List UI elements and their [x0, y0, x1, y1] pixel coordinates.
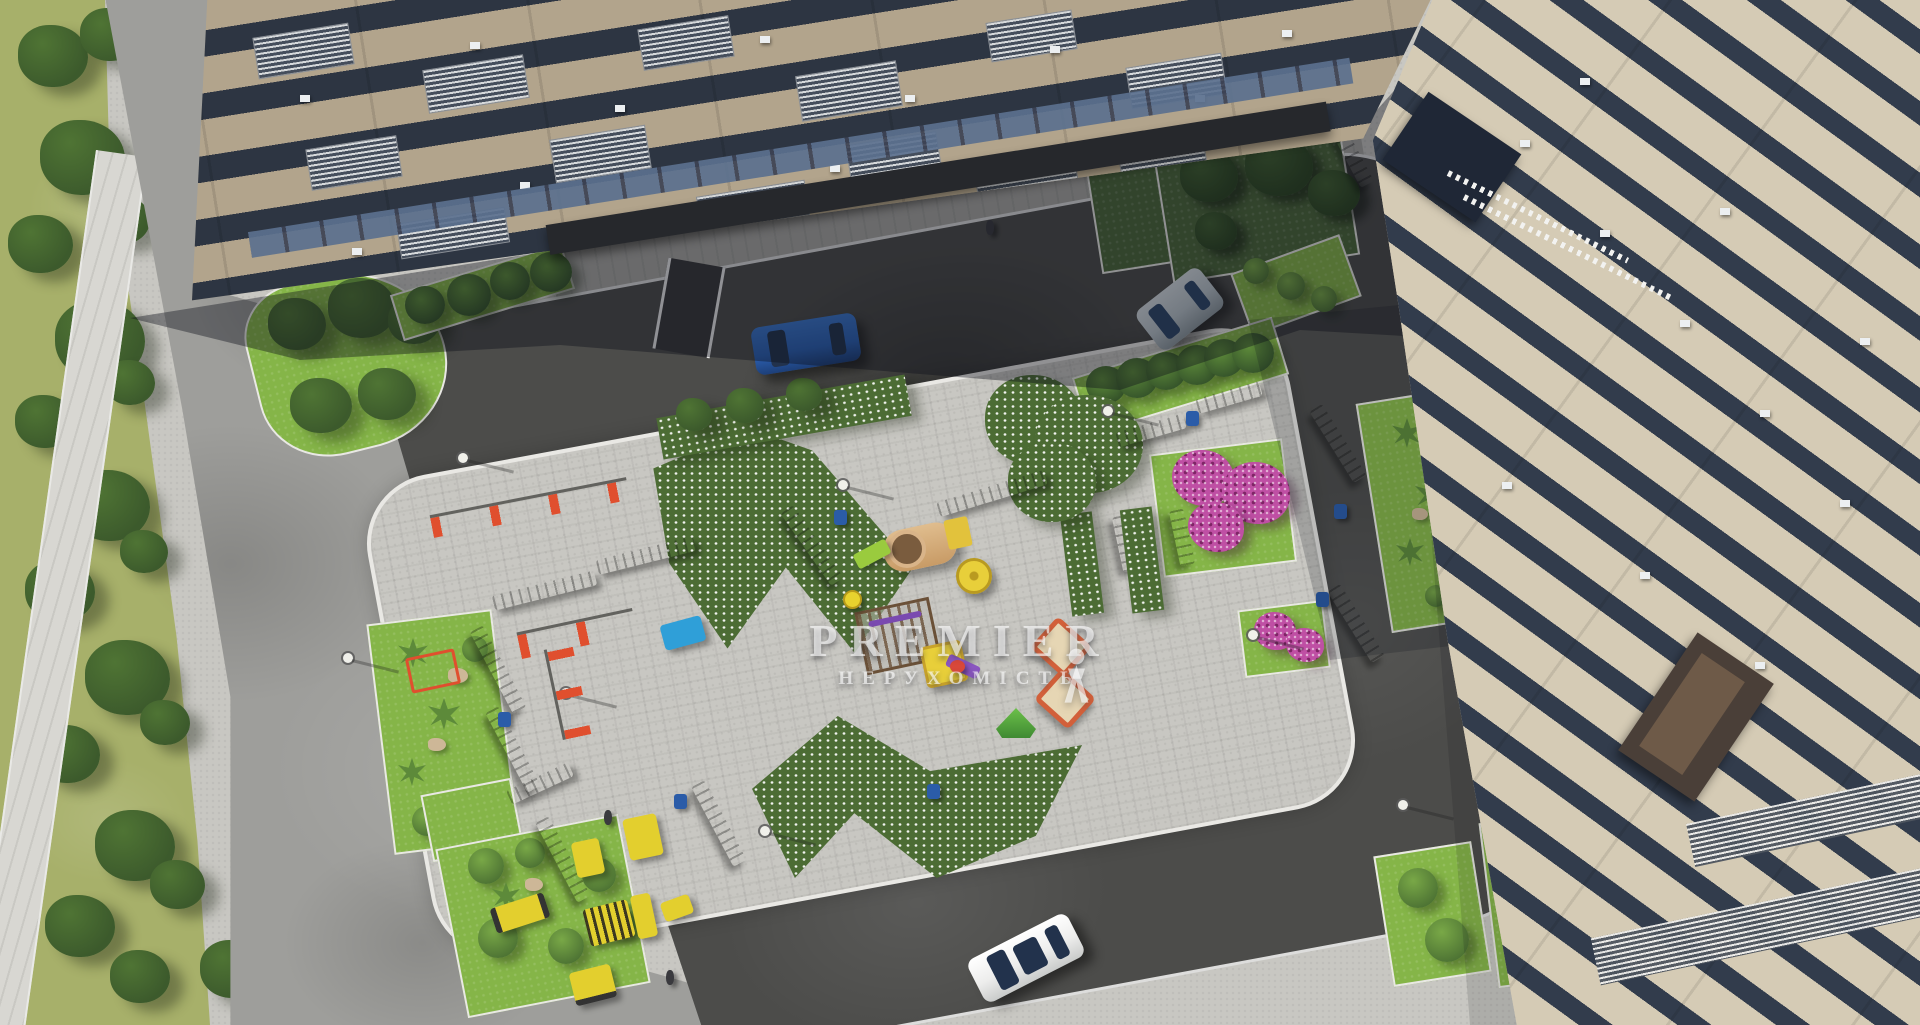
park-tree: [140, 700, 190, 745]
tree: [786, 378, 822, 411]
tunnel-opening: [888, 530, 926, 568]
person: [666, 970, 674, 985]
park-tree: [8, 215, 73, 273]
trash-bin: [1316, 592, 1329, 607]
park-tree: [110, 950, 170, 1003]
carousel: [956, 558, 992, 594]
balcony: [985, 9, 1077, 62]
ac-unit: [1580, 78, 1590, 85]
tree: [726, 388, 764, 423]
tree: [358, 368, 416, 420]
round-bush: [468, 848, 504, 884]
car-rear-window: [828, 322, 847, 356]
cone-tree: [490, 262, 530, 300]
ac-unit: [300, 95, 310, 102]
park-tree: [120, 530, 168, 573]
car-roof-glass: [1012, 936, 1050, 976]
round-bush: [1277, 272, 1305, 300]
tree: [1195, 212, 1237, 250]
person: [986, 220, 994, 235]
ac-unit: [352, 248, 362, 255]
person: [604, 810, 612, 825]
tree: [268, 298, 326, 350]
rock: [1412, 508, 1428, 520]
balcony-railings: [1591, 867, 1920, 986]
round-bush: [1398, 868, 1438, 908]
tree: [328, 278, 396, 338]
park-tree: [150, 860, 205, 909]
courtyard-lawn: [1373, 841, 1491, 987]
round-bush: [1311, 286, 1337, 312]
round-bush: [1243, 258, 1269, 284]
trash-bin: [1334, 504, 1347, 519]
street-lamp: [838, 480, 848, 490]
cone-tree: [447, 274, 491, 316]
ac-unit: [905, 95, 915, 102]
car-windshield: [767, 329, 790, 367]
watermark-title: PREMIER: [0, 618, 1920, 664]
balcony: [795, 60, 903, 121]
cone-tree: [1232, 333, 1274, 373]
tree: [1308, 170, 1360, 216]
tree: [290, 378, 352, 433]
cone-tree: [405, 286, 445, 324]
trash-bin: [834, 510, 847, 525]
ac-unit: [615, 105, 625, 112]
watermark: PREMIER НЕРУХОМІСТЬ: [0, 618, 1920, 690]
ac-unit: [1640, 572, 1650, 579]
balcony-railings: [1686, 773, 1920, 867]
ac-unit: [1760, 410, 1770, 417]
watermark-subtitle: НЕРУХОМІСТЬ: [0, 668, 1920, 690]
park-tree: [45, 895, 115, 957]
balcony: [305, 135, 402, 191]
ac-unit: [470, 42, 480, 49]
ac-unit: [1282, 30, 1292, 37]
balcony: [422, 54, 530, 113]
round-bush: [548, 928, 584, 964]
rock: [525, 878, 543, 891]
street-lamp: [1398, 800, 1408, 810]
rock: [428, 738, 446, 751]
ac-unit: [1680, 320, 1690, 327]
balcony: [252, 23, 354, 80]
trash-bin: [927, 784, 940, 799]
ac-unit: [760, 36, 770, 43]
ramp-railing: [1463, 194, 1674, 301]
car-windshield: [1147, 302, 1182, 340]
courtyard-aerial-render: PREMIER НЕРУХОМІСТЬ: [0, 0, 1920, 1025]
entrance-canopy: [1383, 92, 1522, 223]
pink-flower-tree: [1188, 502, 1244, 552]
ac-unit: [1720, 208, 1730, 215]
spring-rider: [843, 590, 862, 609]
round-bush: [515, 838, 545, 868]
car-rear-window: [1043, 924, 1071, 961]
car-rear-window: [1183, 279, 1212, 312]
tree: [676, 398, 712, 431]
street-lamp: [458, 453, 468, 463]
person-silhouette-icon: [1056, 648, 1097, 706]
trash-bin: [498, 712, 511, 727]
ac-unit: [1502, 482, 1512, 489]
street-lamp: [1103, 406, 1113, 416]
street-lamp: [760, 826, 770, 836]
ac-unit: [1840, 500, 1850, 507]
ac-unit: [1520, 140, 1530, 147]
park-tree: [18, 25, 88, 87]
round-bush: [1425, 918, 1469, 962]
ac-unit: [1050, 46, 1060, 53]
balcony: [637, 15, 734, 71]
trash-bin: [674, 794, 687, 809]
ac-unit: [1860, 338, 1870, 345]
cone-tree: [530, 252, 572, 292]
ac-unit: [1600, 230, 1610, 237]
trash-bin: [1186, 411, 1199, 426]
